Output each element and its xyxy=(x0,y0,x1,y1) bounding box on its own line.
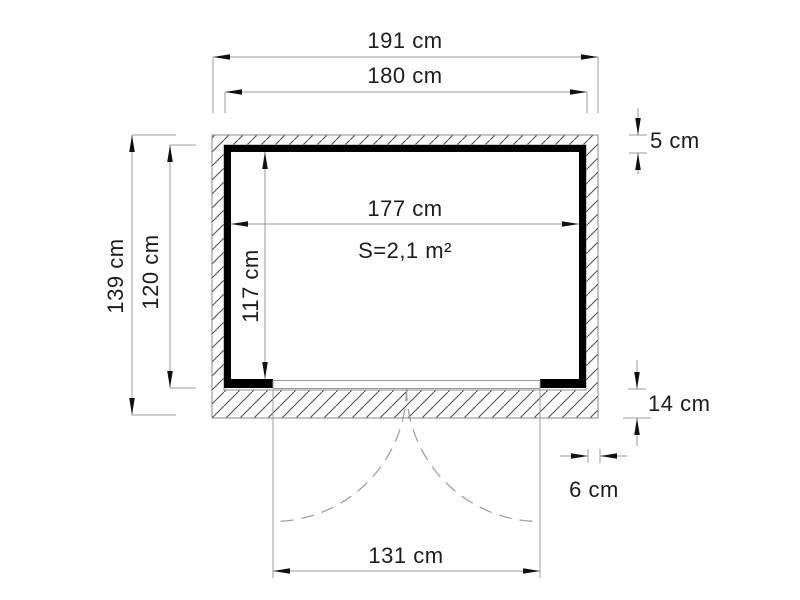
dimension-frame-width: 180 cm xyxy=(225,63,587,113)
dimension-wall-offset-side: 6 cm xyxy=(560,449,627,502)
outer-width-label: 191 cm xyxy=(367,28,442,53)
arrow-left-icon xyxy=(600,453,617,459)
arrow-left-icon xyxy=(273,568,290,574)
shed-floor-plan: 191 cm 180 cm 177 cm S=2,1 m² 139 xyxy=(0,0,800,600)
interior-width-label: 177 cm xyxy=(367,196,442,221)
wall-offset-side-label: 6 cm xyxy=(569,477,619,502)
arrow-up-icon xyxy=(129,135,135,152)
dimension-base-depth: 14 cm xyxy=(623,360,710,446)
arrow-down-icon xyxy=(635,118,641,135)
arrow-right-icon xyxy=(571,453,588,459)
wall-offset-top-label: 5 cm xyxy=(650,128,700,153)
shed-structure xyxy=(212,135,598,418)
arrow-right-icon xyxy=(581,54,598,60)
outer-depth-label: 139 cm xyxy=(103,238,128,313)
interior-depth-label: 117 cm xyxy=(238,249,263,323)
door-width-label: 131 cm xyxy=(368,543,443,568)
dimension-frame-depth: 120 cm xyxy=(138,145,196,388)
arrow-down-icon xyxy=(129,398,135,415)
arrow-down-icon xyxy=(167,371,173,388)
arrow-left-icon xyxy=(213,54,230,60)
arrow-down-icon xyxy=(634,372,640,389)
area-label: S=2,1 m² xyxy=(358,238,452,263)
arrow-right-icon xyxy=(570,89,587,95)
dimension-wall-offset-top: 5 cm xyxy=(629,108,700,174)
door-threshold xyxy=(273,381,540,389)
frame-width-label: 180 cm xyxy=(367,63,442,88)
arrow-up-icon xyxy=(634,418,640,435)
base-depth-label: 14 cm xyxy=(648,391,710,416)
arrow-right-icon xyxy=(523,568,540,574)
arrow-up-icon xyxy=(635,153,641,170)
arrow-left-icon xyxy=(225,89,242,95)
arrow-up-icon xyxy=(167,145,173,162)
interior-floor xyxy=(224,145,586,390)
floor-plan-page: 191 cm 180 cm 177 cm S=2,1 m² 139 xyxy=(0,0,800,600)
frame-depth-label: 120 cm xyxy=(138,234,163,309)
